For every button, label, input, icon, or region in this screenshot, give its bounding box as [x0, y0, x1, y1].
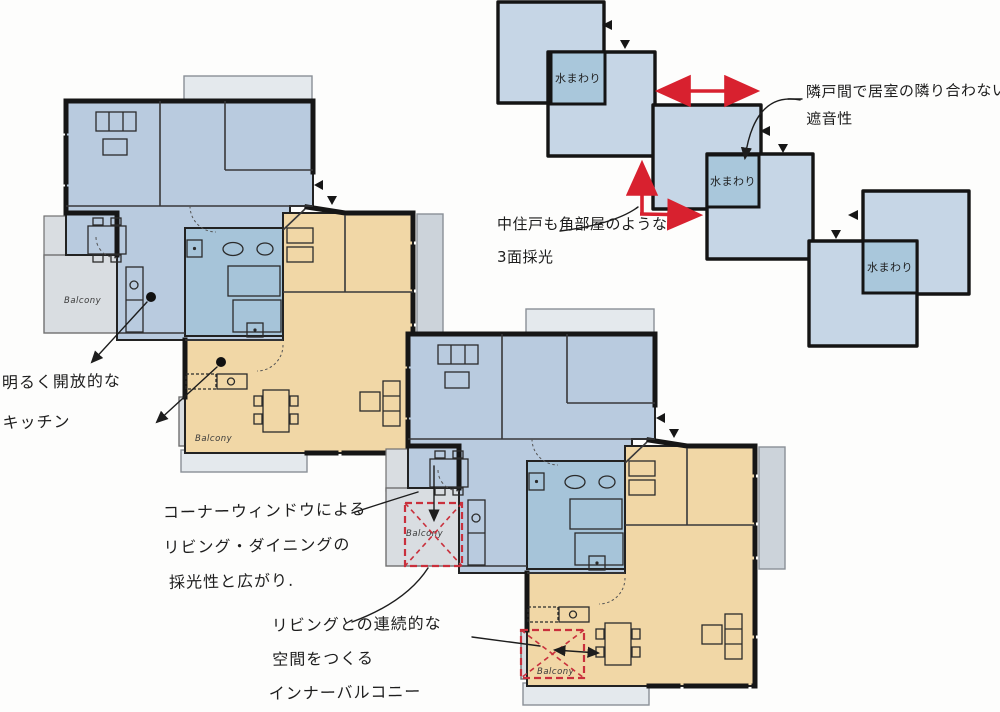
water-area-label: 水まわり [867, 261, 913, 274]
svg-text:中住戸も角部屋のような: 中住戸も角部屋のような [497, 215, 668, 233]
concept-diagram: 水まわり 水まわり 水まわり [498, 2, 969, 346]
note-corner-window: コーナーウィンドウによる リビング・ダイニングの 採光性と広がり. [163, 499, 368, 592]
floor-plan-1 [44, 76, 443, 472]
svg-text:リビングとの連続的な: リビングとの連続的な [272, 614, 442, 635]
sketch-canvas: Balcony Balcony [0, 0, 1000, 712]
svg-text:遮音性: 遮音性 [806, 110, 853, 128]
svg-text:空間をつくる: 空間をつくる [272, 649, 374, 669]
svg-text:明るく開放的な: 明るく開放的な [2, 371, 121, 392]
kitchen-dot-marker [146, 292, 156, 302]
svg-text:採光性と広がり.: 採光性と広がり. [169, 571, 294, 592]
svg-text:リビング・ダイニングの: リビング・ダイニングの [163, 535, 350, 557]
note-inner-balcony: リビングとの連続的な 空間をつくる インナーバルコニー [268, 614, 443, 703]
floor-plan-2 [386, 309, 785, 705]
svg-text:隣戸間で居室の隣り合わない: 隣戸間で居室の隣り合わない [806, 81, 1000, 101]
svg-text:キッチン: キッチン [2, 412, 70, 432]
svg-text:3面採光: 3面採光 [497, 248, 554, 266]
kitchen-dot-marker [216, 357, 226, 367]
note-kitchen: 明るく開放的な キッチン [2, 371, 122, 432]
svg-text:インナーバルコニー: インナーバルコニー [269, 682, 422, 703]
water-area-label: 水まわり [555, 72, 601, 85]
sketch-page: Balcony Balcony [0, 0, 1000, 712]
svg-text:コーナーウィンドウによる: コーナーウィンドウによる [163, 499, 367, 522]
note-daylight: 中住戸も角部屋のような 3面採光 [497, 215, 668, 266]
note-soundproof: 隣戸間で居室の隣り合わない 遮音性 [806, 81, 1000, 128]
water-area-label: 水まわり [710, 175, 756, 188]
